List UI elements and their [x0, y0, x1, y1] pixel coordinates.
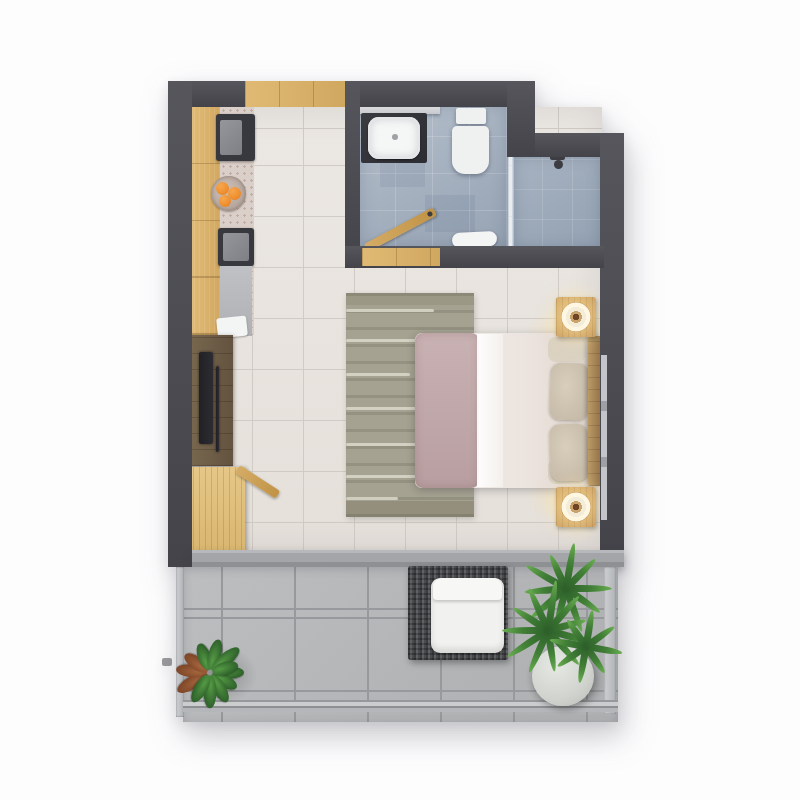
shower-head-icon [554, 160, 563, 169]
toilet [452, 126, 489, 174]
desk [187, 467, 245, 554]
shower-glass-partition [507, 155, 514, 250]
bed-sheet-fold [477, 334, 503, 487]
sliding-glass-door [192, 550, 624, 567]
wall-bathroom-left [345, 81, 360, 268]
bedroom-window [601, 355, 607, 520]
soundbar [216, 366, 219, 452]
toilet-tank [456, 108, 486, 124]
sink-basin [223, 233, 249, 261]
table-lamp-icon [561, 492, 591, 522]
basin-faucet [392, 134, 398, 140]
door-handle-icon [427, 211, 434, 218]
wash-basin [368, 117, 420, 159]
rug-stripe [346, 373, 410, 376]
chair-cushion [431, 578, 504, 653]
kitchen-sink [218, 228, 254, 266]
tv [199, 352, 213, 444]
rug-stripe [346, 497, 398, 500]
orange-fruit [219, 195, 231, 207]
cooktop [216, 114, 255, 161]
balcony-drain [162, 658, 172, 666]
cushion-flap [433, 578, 502, 600]
wall-left [168, 81, 192, 567]
bed-pillow [549, 423, 589, 481]
bathroom-doorway-threshold [362, 248, 440, 266]
shower-floor [512, 155, 602, 250]
fruit-bowl [211, 176, 246, 211]
duvet-fold [548, 337, 586, 362]
cooktop-panel [220, 120, 242, 155]
rug-stripe [346, 309, 434, 312]
table-lamp-icon [561, 302, 591, 332]
rug-stripe [346, 443, 416, 446]
bed-pillow [549, 362, 589, 420]
floor-plan [0, 0, 800, 800]
kitchen-window [245, 81, 347, 107]
bed-blanket [415, 333, 479, 488]
wall-step-vertical [507, 81, 535, 157]
